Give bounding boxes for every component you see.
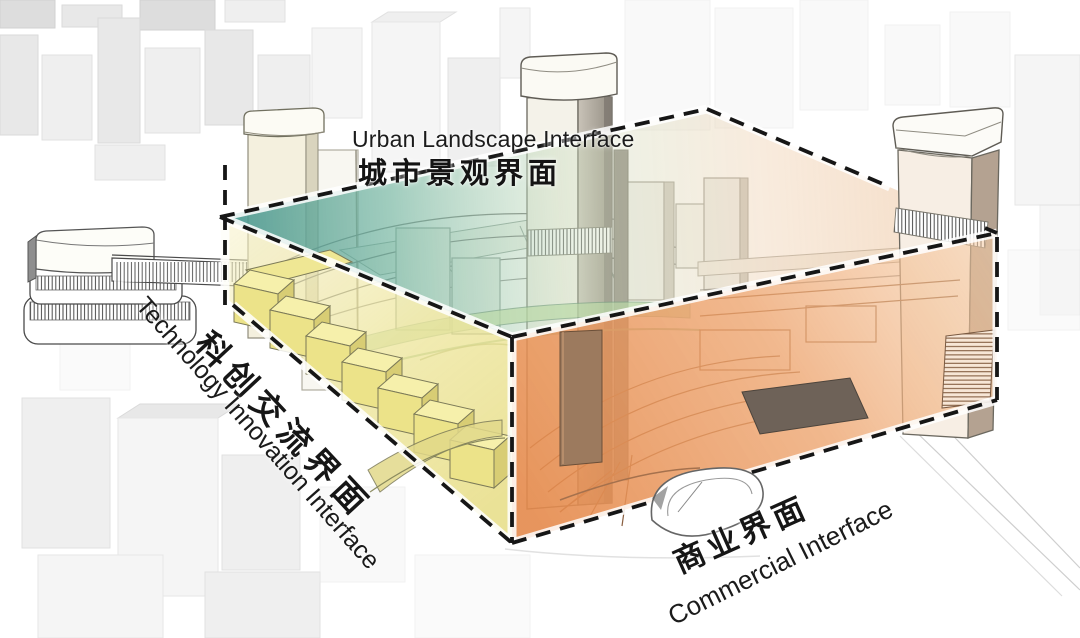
urban-landscape-title-en: Urban Landscape Interface — [352, 126, 634, 154]
urban-landscape-title-cn: 城市景观界面 — [358, 157, 634, 192]
architecture-diagram: Urban Landscape Interface 城市景观界面 科创交流界面 … — [0, 0, 1080, 638]
road-lines — [900, 420, 1080, 596]
label-urban-landscape: Urban Landscape Interface 城市景观界面 — [352, 126, 634, 191]
